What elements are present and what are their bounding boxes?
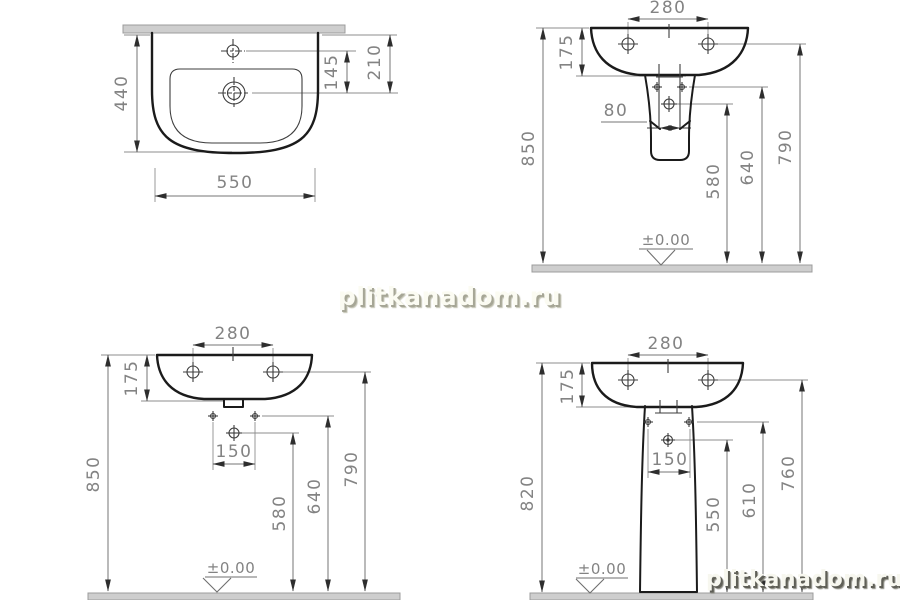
dim-depth-label: 440 — [112, 75, 132, 112]
dim-rim-height-label: 790 — [342, 451, 362, 488]
dim-basin-height: 175 — [557, 28, 686, 76]
dim-depth: 440 — [112, 35, 232, 152]
mounting-hole-right — [263, 362, 283, 382]
trap-hole — [226, 425, 242, 441]
dim-rim-height: 760 — [715, 380, 808, 592]
dim-rim-height: 790 — [280, 372, 371, 591]
mounting-hole-left — [618, 34, 638, 54]
floor-level-label: ±0.00 — [642, 231, 690, 249]
mounting-hole-right — [698, 370, 718, 390]
dim-rim-height-label: 790 — [776, 129, 796, 166]
floor-level-mark: ±0.00 — [576, 560, 628, 593]
dim-basin-height-label: 175 — [557, 34, 577, 71]
dim-fixing-height-label: 610 — [740, 482, 760, 519]
fixing-hole-left — [652, 82, 662, 92]
level-triangle-icon — [203, 578, 231, 592]
tap-hole — [221, 39, 245, 63]
drain-hole — [218, 77, 250, 109]
side-view: 280 175 80 850 580 — [519, 0, 812, 272]
basin-inner-rim — [170, 69, 302, 143]
wall-section — [123, 25, 345, 33]
dim-bolt-spacing-label: 150 — [652, 450, 689, 470]
dim-fixing-height-label: 640 — [738, 149, 758, 186]
dim-rim-height-label: 760 — [779, 455, 799, 492]
dim-basin-height-label: 175 — [558, 368, 578, 405]
dim-overall-height: 850 — [84, 355, 155, 591]
dim-trap-height-label: 550 — [704, 496, 724, 533]
dim-overall-height: 820 — [518, 363, 590, 592]
basin-outline-front — [157, 355, 312, 399]
dim-fixing-height: 640 — [689, 87, 768, 263]
level-triangle-icon — [647, 250, 675, 265]
dim-bolt-spacing-label: 150 — [216, 442, 253, 462]
fixing-hole-right — [677, 82, 687, 92]
trap-hole — [661, 96, 677, 112]
front-view: 280 175 150 850 580 640 — [84, 324, 400, 600]
floor-level-label: ±0.00 — [578, 560, 626, 578]
dim-overall-height-label: 850 — [519, 130, 539, 167]
dim-overall-height: 850 — [519, 28, 589, 263]
mounting-hole-left — [618, 370, 638, 390]
floor-level-mark: ±0.00 — [639, 231, 693, 265]
dim-hole-spacing: 280 — [628, 0, 708, 37]
dim-basin-height: 175 — [558, 363, 642, 407]
dim-hole-spacing-label: 280 — [215, 324, 252, 344]
mounting-hole-left — [183, 362, 203, 382]
level-triangle-icon — [576, 579, 604, 593]
dim-width-label: 550 — [217, 173, 254, 193]
floor-level-label: ±0.00 — [207, 559, 255, 577]
dim-overall-height-label: 820 — [518, 475, 538, 512]
dim-outlet-width-label: 80 — [604, 101, 629, 121]
watermark-center: plitkanadom.ru — [338, 282, 561, 311]
plan-view: 440 550 145 210 — [112, 25, 398, 202]
trap-hole — [661, 433, 675, 447]
dim-overall-height-label: 850 — [84, 456, 104, 493]
fixing-hole-left — [208, 411, 218, 421]
dim-fixing-height-label: 640 — [305, 478, 325, 515]
floor-level-mark: ±0.00 — [203, 559, 257, 592]
dim-trap-height-label: 580 — [270, 495, 290, 532]
floor-section — [532, 265, 812, 272]
dim-trap-height-label: 580 — [704, 163, 724, 200]
dim-outlet-width: 80 — [601, 101, 691, 128]
dim-basin-height: 175 — [122, 355, 224, 401]
mounting-hole-right — [698, 34, 718, 54]
watermark-corner: plitkanadom.ru — [706, 567, 900, 592]
dim-hole-spacing-label: 280 — [650, 0, 687, 18]
dim-tap-to-drain-label: 145 — [322, 54, 342, 91]
dim-wall-to-drain-label: 210 — [365, 44, 385, 81]
dim-rim-height: 790 — [714, 44, 806, 263]
dim-basin-height-label: 175 — [122, 360, 142, 397]
floor-section — [530, 593, 813, 600]
dim-hole-spacing-label: 280 — [648, 334, 685, 354]
floor-section — [88, 593, 400, 600]
washbasin-technical-drawing: 440 550 145 210 — [0, 0, 900, 600]
pedestal-view: 280 175 150 820 550 610 — [518, 334, 813, 600]
fixing-hole-right — [250, 411, 260, 421]
semi-pedestal-outline — [645, 75, 695, 160]
dim-bolt-spacing: 150 — [648, 429, 690, 478]
drain-outlet — [224, 399, 243, 407]
dim-width: 550 — [155, 168, 315, 202]
